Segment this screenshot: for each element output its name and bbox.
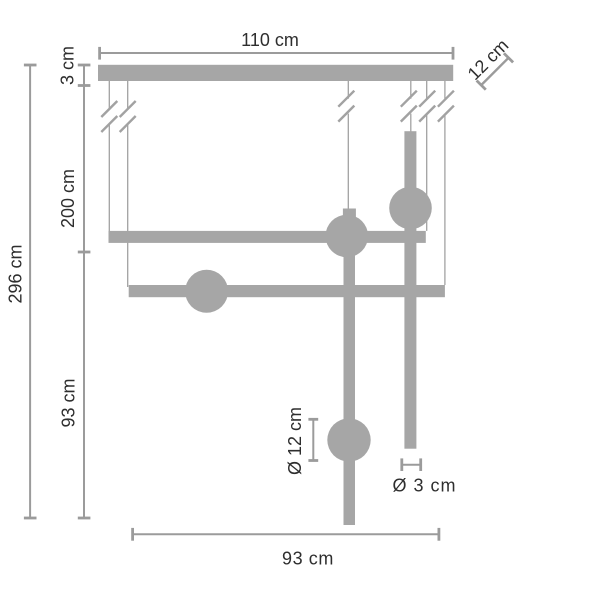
svg-text:200 cm: 200 cm	[58, 169, 78, 228]
svg-text:93 cm: 93 cm	[58, 378, 78, 427]
svg-text:296 cm: 296 cm	[6, 244, 26, 303]
svg-text:Ø 3 cm: Ø 3 cm	[392, 476, 456, 496]
svg-text:110 cm: 110 cm	[241, 30, 299, 50]
svg-text:3 cm: 3 cm	[57, 46, 77, 85]
svg-text:Ø 12 cm: Ø 12 cm	[285, 407, 305, 475]
svg-text:93 cm: 93 cm	[282, 549, 334, 569]
